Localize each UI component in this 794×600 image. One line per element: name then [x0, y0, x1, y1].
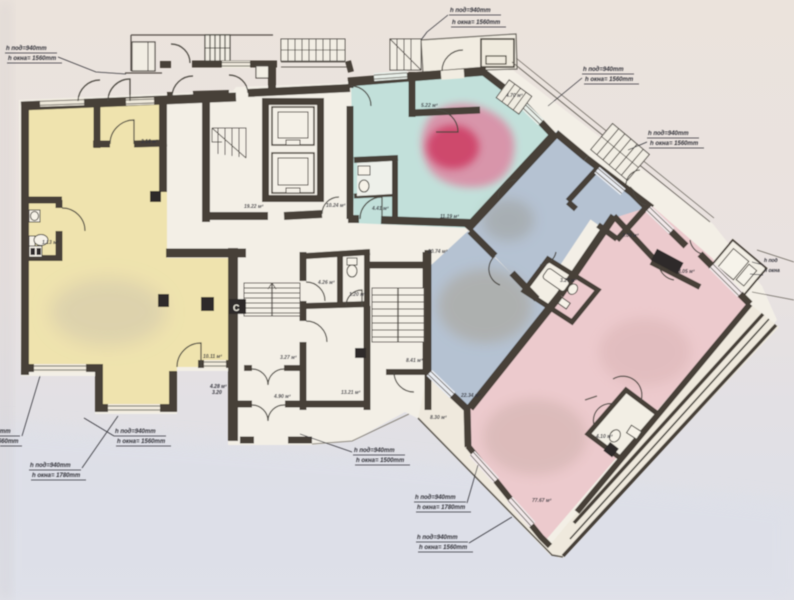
svg-text:3.05 м²: 3.05 м²: [678, 269, 695, 275]
svg-text:4.10 м²: 4.10 м²: [595, 434, 613, 440]
svg-text:h окна= 1500mm: h окна= 1500mm: [356, 458, 405, 464]
svg-text:10.24 м²: 10.24 м²: [326, 203, 346, 209]
svg-text:22.34 м²: 22.34 м²: [460, 393, 481, 399]
svg-text:5.22 м²: 5.22 м²: [421, 103, 438, 109]
svg-text:h под=940mm: h под=940mm: [115, 429, 156, 435]
svg-text:h под=940mm: h под=940mm: [417, 535, 458, 541]
svg-text:77.67 м²: 77.67 м²: [532, 498, 552, 504]
svg-text:h окна: h окна: [764, 268, 780, 274]
svg-text:h под: h под: [764, 258, 778, 264]
svg-text:h окна= 1560mm: h окна= 1560mm: [452, 20, 501, 26]
svg-text:h под=940mm: h под=940mm: [450, 8, 491, 14]
svg-text:4.41 м²: 4.41 м²: [371, 206, 389, 212]
svg-text:4.90 м²: 4.90 м²: [273, 394, 291, 400]
svg-text:h окна= 1560mm: h окна= 1560mm: [585, 77, 634, 83]
svg-text:20.74 м²: 20.74 м²: [427, 249, 448, 255]
svg-text:h окна= 1560mm: h окна= 1560mm: [8, 56, 57, 62]
svg-text:8.41 м²: 8.41 м²: [406, 358, 423, 364]
svg-text:h под=940mm: h под=940mm: [30, 463, 71, 469]
svg-text:13.21 м²: 13.21 м²: [341, 390, 361, 396]
svg-text:8.30 м²: 8.30 м²: [430, 415, 447, 421]
svg-text:1.13 м²: 1.13 м²: [42, 240, 59, 246]
svg-text:h окна= 1560mm: h окна= 1560mm: [117, 439, 166, 445]
svg-text:4.70 м²: 4.70 м²: [505, 93, 523, 99]
svg-text:3.09 м²: 3.09 м²: [622, 233, 639, 239]
svg-text:C: C: [233, 303, 240, 313]
svg-text:h окна= 1780mm: h окна= 1780mm: [417, 505, 466, 511]
svg-text:h под=940mm: h под=940mm: [0, 429, 11, 435]
svg-text:h окна= 1780mm: h окна= 1780mm: [32, 473, 81, 479]
svg-text:h под=940mm: h под=940mm: [354, 448, 395, 454]
svg-text:3.27 м²: 3.27 м²: [560, 278, 577, 284]
svg-text:h окна= 1560mm: h окна= 1560mm: [419, 545, 468, 551]
svg-text:4.26 м²: 4.26 м²: [317, 280, 335, 286]
svg-text:10.11 м²: 10.11 м²: [203, 354, 222, 360]
svg-text:11.19 м²: 11.19 м²: [440, 214, 459, 220]
svg-text:3.16 м²: 3.16 м²: [141, 139, 158, 145]
svg-text:1.20 м²: 1.20 м²: [349, 292, 366, 298]
svg-text:h окна= 1560mm: h окна= 1560mm: [650, 141, 699, 147]
svg-text:h под=940mm: h под=940mm: [583, 67, 624, 73]
svg-text:19.22 м²: 19.22 м²: [244, 204, 264, 210]
svg-text:h под=940mm: h под=940mm: [648, 131, 689, 137]
svg-text:h под=940mm: h под=940mm: [6, 46, 47, 52]
svg-text:3.27 м²: 3.27 м²: [280, 355, 297, 361]
svg-text:3.20: 3.20: [212, 390, 222, 396]
svg-text:h окна=1560mm: h окна=1560mm: [0, 439, 19, 445]
svg-text:h под=940mm: h под=940mm: [415, 495, 456, 501]
